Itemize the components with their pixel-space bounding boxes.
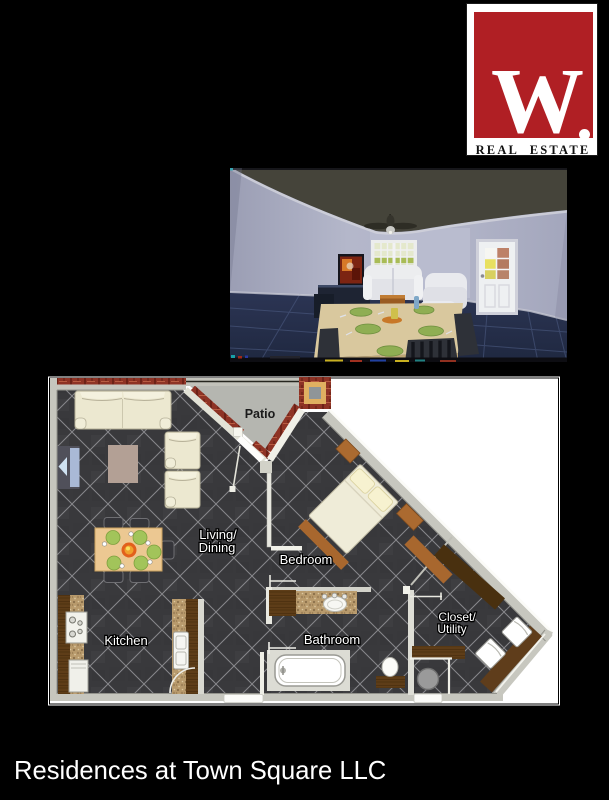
svg-text:Utility: Utility	[437, 622, 466, 636]
svg-text:Bedroom: Bedroom	[280, 552, 333, 567]
svg-text:Dining: Dining	[199, 540, 236, 555]
svg-text:Patio: Patio	[245, 407, 276, 421]
svg-text:Bathroom: Bathroom	[304, 632, 360, 647]
svg-text:Kitchen: Kitchen	[104, 633, 147, 648]
